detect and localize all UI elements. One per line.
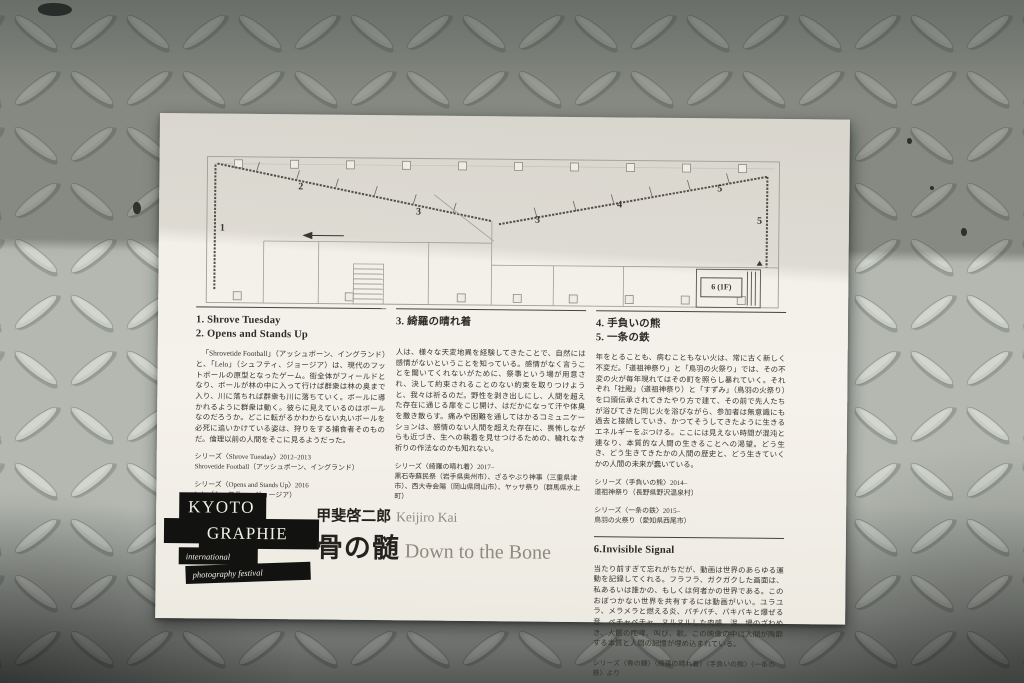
series-credit: シリーズ〈一条の鉄〉2015– 鳥羽の火祭り（愛知県西尾市） xyxy=(594,506,784,528)
plan-stair-label: 6 (1F) xyxy=(700,277,742,297)
scuff-mark xyxy=(38,3,72,16)
series-detail: 黒石寺蘇民祭（岩手県奥州市）、ざるやぶり神事（三重県津市）、西大寺会陽（岡山県岡… xyxy=(394,472,584,504)
plan-zone-label-4: 4 xyxy=(617,199,622,210)
exhibition-title-block: 甲斐啓二郎 Keijiro Kai 骨の髄 Down to the Bone xyxy=(316,505,617,568)
exhibition-title-japanese: 骨の髄 xyxy=(316,526,400,566)
plan-zone-label-5b: 5 xyxy=(757,216,762,227)
plan-zone-label-3a: 3 xyxy=(416,206,421,217)
logo-text-photography-festival: photography festival xyxy=(185,562,311,584)
exhibition-title-english: Down to the Bone xyxy=(405,540,551,564)
section-body: 年をとることも、病むこともない火は、常に古く新しく不変だ。「道祖神祭り」と「鳥羽… xyxy=(595,353,786,472)
section-heading-invisible-signal: 6.Invisible Signal xyxy=(594,543,784,559)
section-heading: 3. 綺羅の晴れ着 xyxy=(396,315,586,331)
series-title: シリーズ〈手負いの熊〉2014– xyxy=(594,479,687,487)
series-source-line: シリーズ〈骨の髄〉〈綺羅の晴れ着〉〈手負いの熊〉〈一条の鉄〉より xyxy=(593,657,783,679)
section-body: 「Shrovetide Football」（アッシュボーン、イングランド）と、「… xyxy=(195,349,386,447)
gallery-floor-plan: 1 2 3 3 4 5 5 6 (1F) xyxy=(203,150,784,314)
series-credit: シリーズ〈Shrove Tuesday〉2012–2013 Shrovetide… xyxy=(195,453,385,475)
scuff-mark xyxy=(133,202,141,214)
logo-text-graphie: GRAPHIE xyxy=(199,518,319,549)
series-title: シリーズ〈綺羅の晴れ着〉2017– xyxy=(395,463,495,471)
plan-zone-label-2: 2 xyxy=(298,181,303,192)
scuff-mark xyxy=(907,138,912,144)
exhibition-flyer: 1 2 3 3 4 5 5 6 (1F) 1. Shrove Tuesday 2… xyxy=(155,113,850,625)
section-heading: 5. 一条の鉄 xyxy=(596,331,786,347)
series-credit: シリーズ〈手負いの熊〉2014– 道祖神祭り（長野県野沢温泉村） xyxy=(594,478,784,500)
section-body: 人は、様々な天変地異を経験してきたことで、自然には感情がないということを知ってい… xyxy=(395,347,586,455)
photo-of-flyer-on-metal-floor: { "colors": { "paper": "#f5f2eb", "ink":… xyxy=(0,0,1024,683)
kyotographie-logo: KYOTO GRAPHIE international photography … xyxy=(163,488,324,600)
logo-text-kyoto: KYOTO xyxy=(179,492,266,522)
section-kira-no-haregi: 3. 綺羅の晴れ着 人は、様々な天変地異を経験してきたことで、自然には感情がない… xyxy=(394,308,586,504)
logo-block xyxy=(164,518,200,543)
section-divider xyxy=(594,536,784,539)
section-shrove-tuesday: 1. Shrove Tuesday 2. Opens and Stands Up… xyxy=(194,306,386,502)
series-credit: シリーズ〈綺羅の晴れ着〉2017– 黒石寺蘇民祭（岩手県奥州市）、ざるやぶり神事… xyxy=(394,462,584,504)
series-title: シリーズ〈Shrove Tuesday〉2012–2013 xyxy=(195,454,311,462)
scuff-mark xyxy=(961,228,967,236)
plan-zone-label-1: 1 xyxy=(220,223,225,234)
scuff-mark xyxy=(930,186,934,190)
section-heading: 2. Opens and Stands Up xyxy=(196,328,386,344)
section-body: 当たり前すぎて忘れがちだが、動画は世界のあらゆる運動を記録してくれる。フラフラ、… xyxy=(593,564,784,651)
series-detail: 道祖神祭り（長野県野沢温泉村） xyxy=(594,488,784,500)
artist-name-japanese: 甲斐啓二郎 xyxy=(316,505,391,527)
series-detail: 鳥羽の火祭り（愛知県西尾市） xyxy=(594,516,784,528)
plan-zone-label-3b: 3 xyxy=(535,215,540,226)
logo-text-international: international xyxy=(179,547,258,565)
section-teoi-no-kuma: 4. 手負いの熊 5. 一条の鉄 年をとることも、病むこともない火は、常に古く新… xyxy=(592,310,786,683)
artist-name-english: Keijiro Kai xyxy=(396,509,457,526)
series-detail: Shrovetide Football（アッシュボーン、イングランド） xyxy=(195,463,385,475)
plan-zone-label-5a: 5 xyxy=(717,183,722,194)
